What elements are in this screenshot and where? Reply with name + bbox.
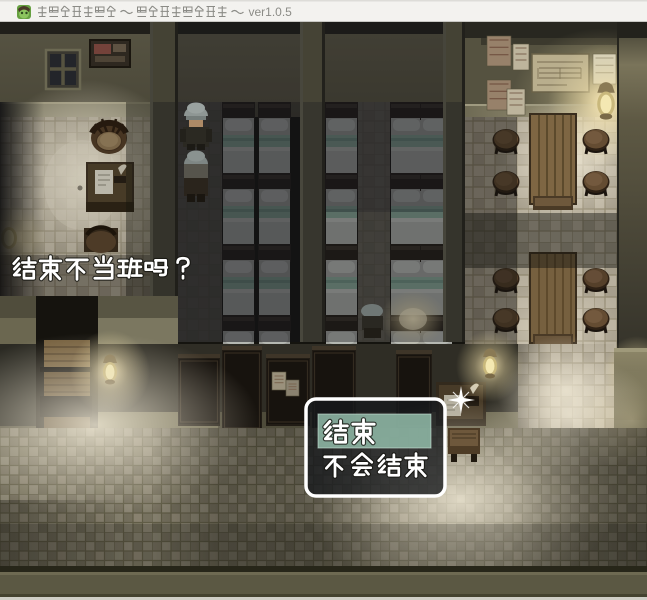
svg-text:ver1.0.5: ver1.0.5 [249, 5, 293, 19]
